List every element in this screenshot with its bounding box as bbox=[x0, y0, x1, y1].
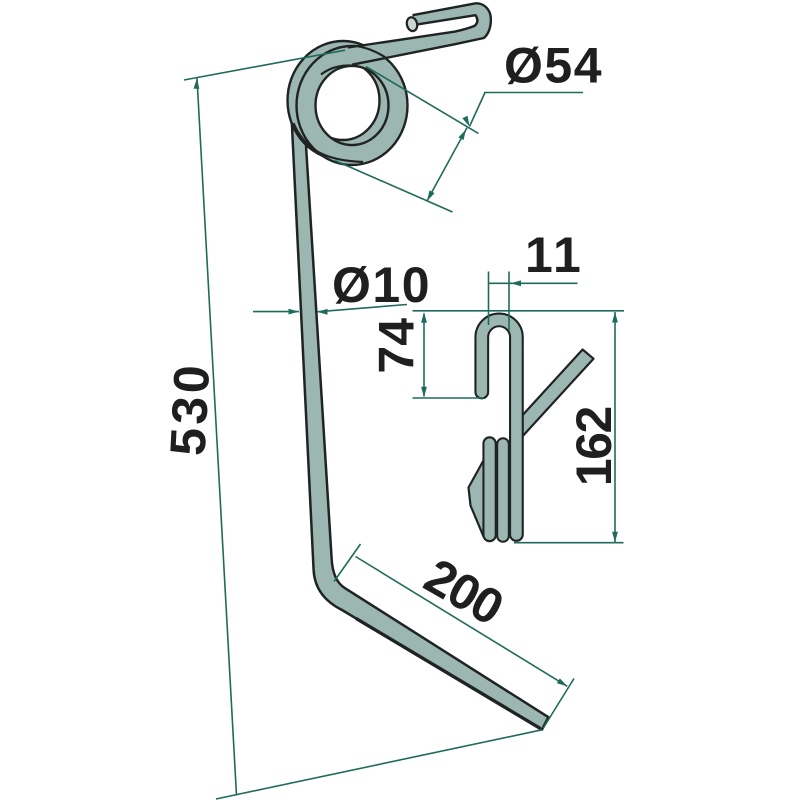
svg-text:74: 74 bbox=[368, 318, 424, 374]
svg-text:162: 162 bbox=[566, 407, 622, 486]
svg-text:530: 530 bbox=[160, 360, 221, 457]
svg-text:11: 11 bbox=[525, 227, 584, 283]
svg-text:Ø10: Ø10 bbox=[332, 257, 431, 313]
svg-text:Ø54: Ø54 bbox=[504, 38, 603, 94]
